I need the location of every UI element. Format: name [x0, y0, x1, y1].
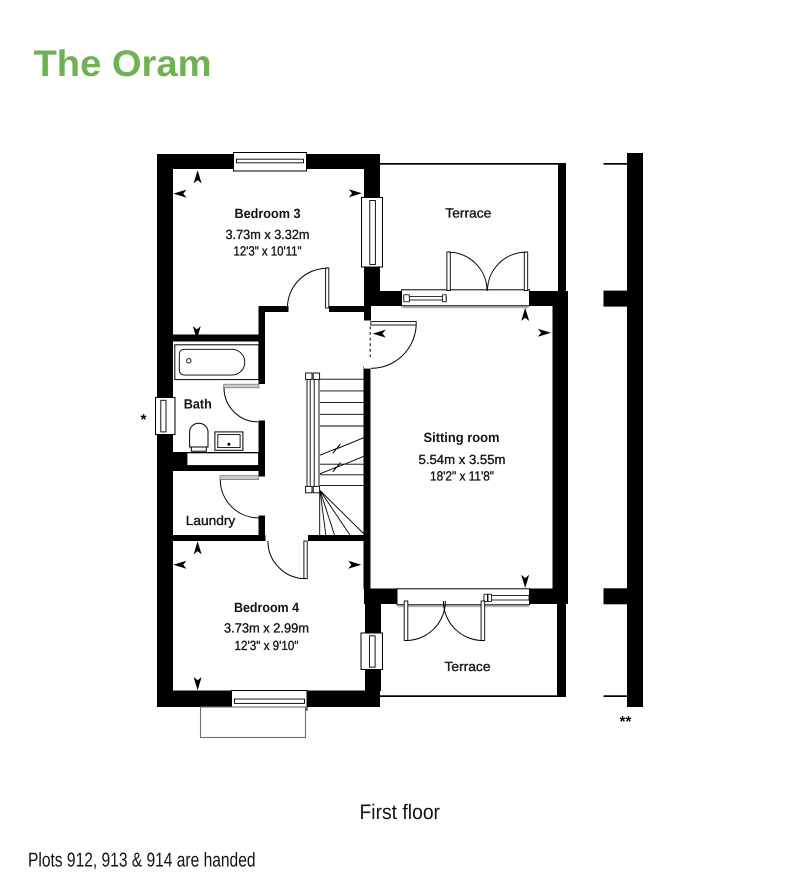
svg-text:**: **: [620, 714, 632, 731]
svg-text:5.54m x 3.55m: 5.54m x 3.55m: [419, 452, 506, 467]
svg-text:12'3" x 9'10": 12'3" x 9'10": [235, 638, 299, 653]
svg-text:Bedroom 4: Bedroom 4: [234, 600, 300, 615]
svg-text:18'2" x 11'8": 18'2" x 11'8": [430, 469, 494, 484]
svg-text:Bath: Bath: [184, 396, 212, 411]
svg-text:Sitting room: Sitting room: [424, 430, 500, 445]
svg-text:First floor: First floor: [360, 801, 441, 824]
svg-text:3.73m x 3.32m: 3.73m x 3.32m: [226, 227, 310, 242]
svg-text:Laundry: Laundry: [186, 513, 236, 528]
svg-text:*: *: [141, 412, 147, 429]
svg-text:12'3" x 10'11": 12'3" x 10'11": [234, 244, 302, 259]
svg-text:Bedroom 3: Bedroom 3: [235, 206, 301, 221]
svg-text:Terrace: Terrace: [445, 659, 491, 674]
svg-text:Terrace: Terrace: [445, 206, 491, 221]
svg-text:The Oram: The Oram: [34, 43, 212, 84]
svg-text:Plots 912, 913 & 914 are hande: Plots 912, 913 & 914 are handed: [28, 850, 256, 872]
svg-text:3.73m x 2.99m: 3.73m x 2.99m: [224, 620, 309, 635]
